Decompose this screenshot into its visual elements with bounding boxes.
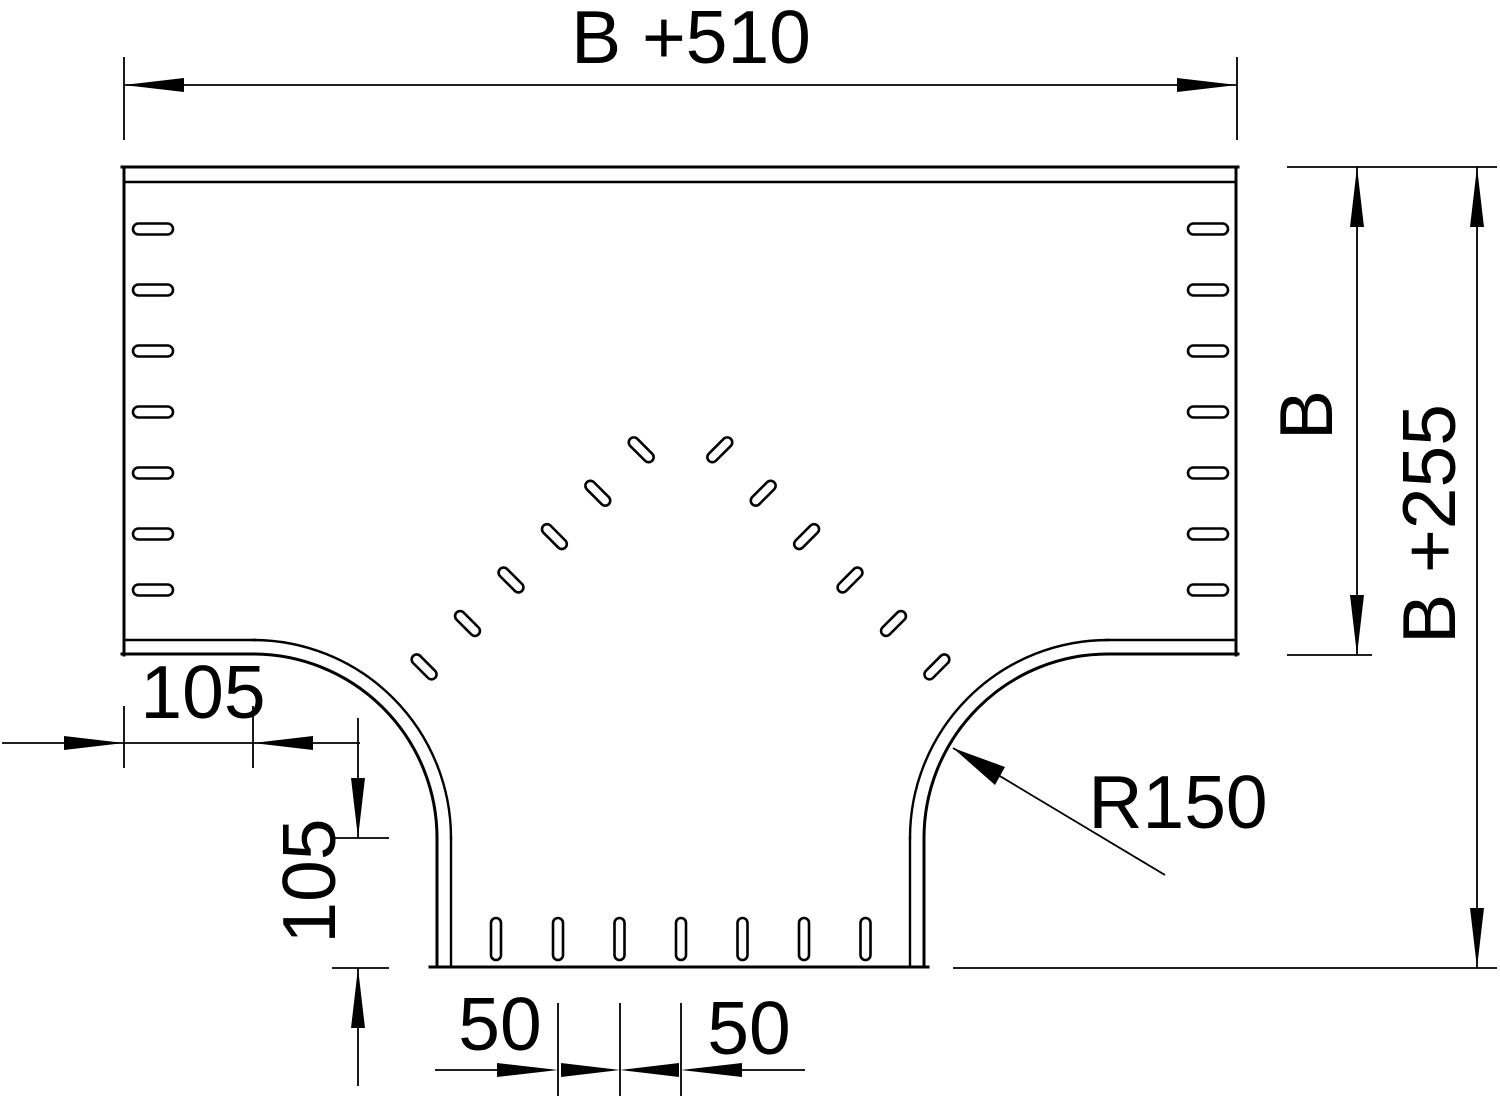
slot bbox=[1188, 468, 1228, 479]
dim-label-inner-height: B bbox=[1264, 390, 1348, 440]
dim-slot-pitch: 50 50 bbox=[435, 982, 805, 1096]
slot bbox=[922, 652, 951, 681]
slot bbox=[1188, 585, 1228, 596]
fillet-right-outer bbox=[924, 654, 1108, 838]
dim-arrow bbox=[253, 736, 313, 750]
dim-arrow bbox=[1470, 167, 1484, 227]
slot bbox=[133, 585, 173, 596]
dim-top-width: B +510 bbox=[124, 0, 1237, 140]
slot bbox=[453, 609, 482, 638]
slot bbox=[133, 285, 173, 296]
slot bbox=[836, 566, 865, 595]
dim-arrow bbox=[1350, 595, 1364, 655]
slot bbox=[1188, 529, 1228, 540]
slot bbox=[133, 529, 173, 540]
slot bbox=[133, 224, 173, 235]
slot bbox=[615, 918, 625, 960]
dim-label-top-width: B +510 bbox=[571, 0, 811, 79]
drawing-canvas: B +510 B B +255 105 105 bbox=[0, 0, 1500, 1096]
dim-arrow bbox=[124, 78, 184, 92]
slot bbox=[1188, 346, 1228, 357]
slot bbox=[738, 918, 748, 960]
dim-label-left-offset: 105 bbox=[140, 650, 265, 734]
slot bbox=[491, 918, 501, 960]
dim-arrow bbox=[351, 778, 365, 838]
dim-left-offset: 105 bbox=[2, 650, 360, 768]
dim-label-radius: R150 bbox=[1088, 760, 1267, 844]
slot bbox=[1188, 224, 1228, 235]
dim-label-pitch-right: 50 bbox=[707, 986, 790, 1070]
slot bbox=[1188, 407, 1228, 418]
dim-label-bottom-offset: 105 bbox=[267, 818, 351, 943]
dim-label-outer-height: B +255 bbox=[1387, 404, 1471, 644]
slot bbox=[879, 609, 908, 638]
slot bbox=[861, 918, 871, 960]
dim-arrow bbox=[1177, 78, 1237, 92]
slot bbox=[799, 918, 809, 960]
right-slot-column bbox=[1188, 224, 1228, 596]
dim-bottom-offset: 105 bbox=[267, 718, 389, 1086]
slot bbox=[540, 522, 569, 551]
radius-callout: R150 bbox=[953, 748, 1268, 875]
slot bbox=[133, 468, 173, 479]
slot bbox=[583, 479, 612, 508]
left-slot-column bbox=[133, 224, 173, 596]
slot bbox=[553, 918, 563, 960]
slot bbox=[627, 435, 656, 464]
dim-arrow bbox=[561, 1063, 620, 1077]
slot bbox=[133, 346, 173, 357]
dim-arrow bbox=[1470, 908, 1484, 968]
dim-arrow bbox=[1350, 167, 1364, 227]
t-branch-drawing: B +510 B B +255 105 105 bbox=[0, 0, 1500, 1096]
slot bbox=[410, 652, 439, 681]
dim-arrow bbox=[620, 1063, 679, 1077]
leader-arrow bbox=[953, 748, 1005, 785]
slot bbox=[676, 918, 686, 960]
dim-label-pitch-left: 50 bbox=[458, 982, 541, 1066]
slot bbox=[705, 435, 734, 464]
bottom-slot-row bbox=[491, 918, 871, 960]
slot bbox=[749, 479, 778, 508]
slot bbox=[1188, 285, 1228, 296]
dim-arrow bbox=[351, 968, 365, 1028]
corner-slot-fan-right bbox=[705, 435, 951, 681]
slot bbox=[497, 566, 526, 595]
dim-arrow bbox=[64, 736, 124, 750]
slot bbox=[133, 407, 173, 418]
corner-slot-fan-left bbox=[410, 435, 656, 681]
slot bbox=[792, 522, 821, 551]
